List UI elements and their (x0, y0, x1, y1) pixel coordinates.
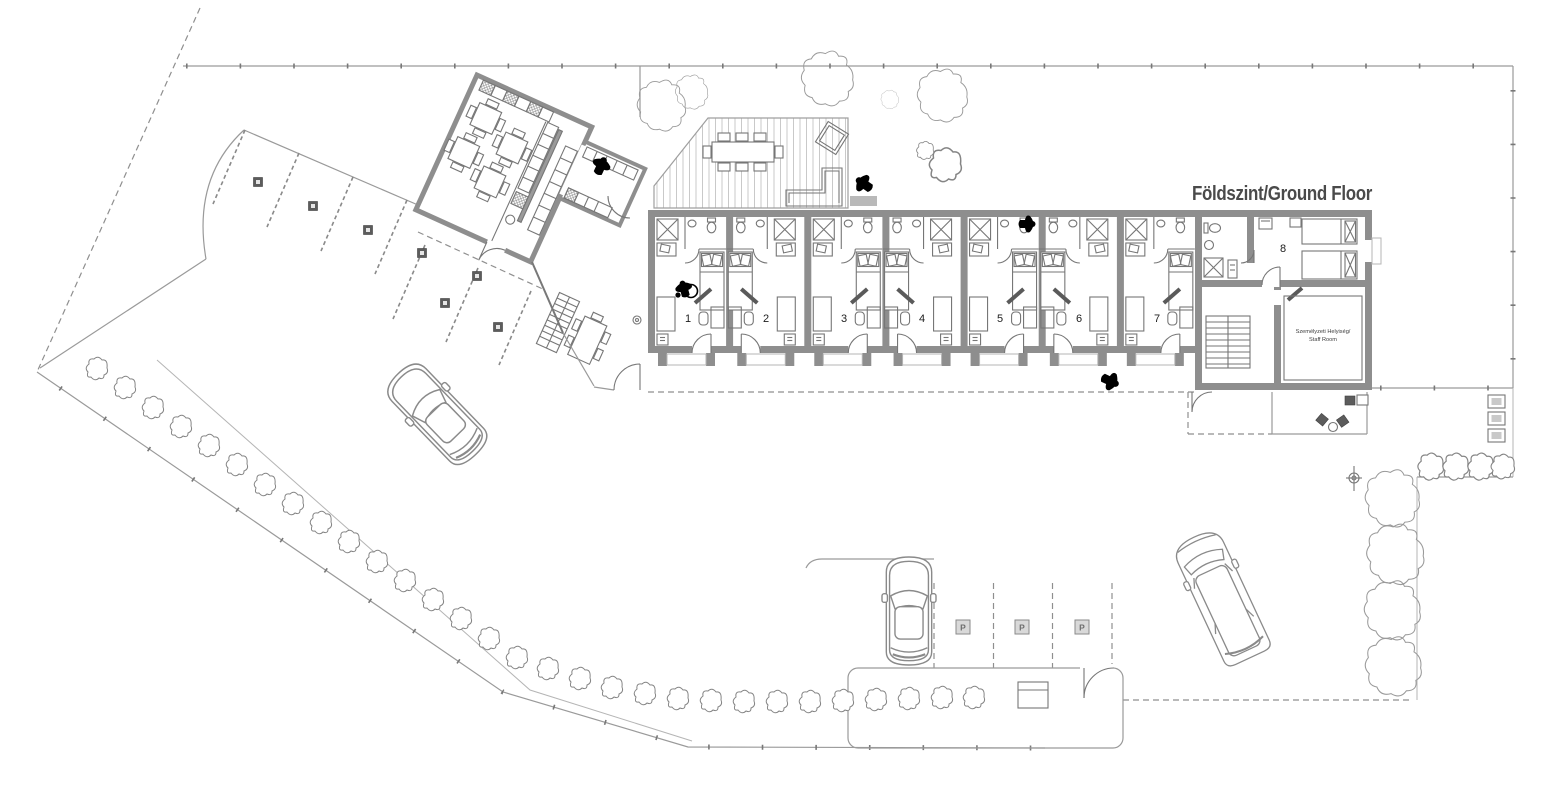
shrub-icon (931, 686, 952, 709)
car-icon (378, 354, 496, 473)
tree-icon (675, 75, 707, 109)
staff-room-label-hu: Személyzeti Helyiség/ (1296, 329, 1351, 335)
floor-title: Földszint/Ground Floor (1192, 182, 1372, 205)
tree-icon (1367, 524, 1424, 584)
parking-sign: P (956, 620, 970, 634)
shrub-icon (366, 550, 387, 573)
terrace-deck (654, 118, 877, 208)
shrub-icon (733, 690, 754, 713)
room-4-interior (883, 217, 952, 366)
svg-text:P: P (1019, 623, 1025, 633)
room-8-balcony (1365, 238, 1381, 264)
stairwell (1206, 316, 1250, 368)
shrub-icon (478, 627, 499, 650)
shrub-icon (569, 667, 590, 690)
tree-icon (1364, 581, 1420, 640)
shrub-icon (282, 492, 303, 515)
tree-icon (881, 90, 899, 109)
shrub-icon (865, 688, 886, 711)
shrub-icon (799, 690, 820, 713)
room-1-interior (657, 217, 726, 366)
room-2-interior (726, 217, 795, 366)
floor-plan-canvas: 1 2 3 4 5 6 7 8 (0, 0, 1546, 787)
shrub-icon (450, 607, 471, 630)
shrub-icon (667, 687, 688, 710)
vehicles (378, 354, 1276, 670)
room-5-number: 5 (997, 313, 1003, 325)
shrub-icon (422, 588, 443, 611)
entry-door (614, 364, 640, 390)
room-2-number: 2 (763, 313, 769, 325)
shrub-icon (929, 148, 961, 182)
wheelchair-person-icon (674, 279, 698, 300)
guest-room-block: 1 2 3 4 5 6 7 8 (648, 210, 1381, 392)
room-3-number: 3 (841, 313, 847, 325)
shrub-icon (254, 473, 275, 496)
tree-icon (917, 69, 967, 122)
shrub-icon (766, 690, 787, 713)
room-3-interior (813, 217, 882, 366)
yard-gate (1084, 668, 1114, 698)
shrub-icon (700, 689, 721, 712)
svg-text:P: P (960, 623, 966, 633)
shrub-icon (198, 434, 219, 457)
tree-icon (1365, 470, 1419, 527)
shrub-icon (86, 357, 107, 380)
shrub-icon (898, 687, 919, 710)
shrub-icon (1468, 453, 1494, 480)
tree-icon (1365, 637, 1421, 696)
shrub-icon (114, 376, 135, 399)
shrub-icon (1491, 454, 1514, 479)
person-icon (851, 171, 877, 197)
bin-store (1018, 682, 1048, 708)
shrub-icon (537, 657, 558, 680)
parking-sign: P (1075, 620, 1089, 634)
room-7-number: 7 (1154, 313, 1160, 325)
shrub-icon (170, 415, 191, 438)
room-5-interior (970, 217, 1039, 366)
tree-icon (637, 80, 685, 131)
shrub-icon (1418, 453, 1444, 480)
person-icon (1098, 369, 1123, 394)
shrub-icon (917, 141, 934, 159)
shrub-icon (310, 511, 331, 534)
floor-plan-page: 1 2 3 4 5 6 7 8 (0, 0, 1546, 787)
room-8-bathroom (1204, 223, 1254, 278)
room-8-interior (1259, 218, 1357, 300)
van-icon (1167, 525, 1276, 670)
patio-furniture (1316, 395, 1368, 432)
car-icon (882, 557, 936, 665)
shrub-icon (394, 569, 415, 592)
shrub-icon (634, 682, 655, 705)
shrub-icon (1443, 453, 1469, 480)
room-6-number: 6 (1076, 313, 1082, 325)
room-8-number: 8 (1280, 243, 1286, 255)
room-1-number: 1 (685, 313, 691, 325)
shrub-icon (963, 686, 984, 709)
reception-table (561, 307, 616, 367)
shrub-icon (226, 453, 247, 476)
parking-sign: P (1015, 620, 1029, 634)
property-line (37, 8, 200, 372)
staff-room-label-en: Staff Room (1309, 337, 1337, 343)
room-7-interior (1126, 217, 1195, 366)
pavement (848, 668, 1123, 748)
shrub-icon (142, 396, 163, 419)
shrub-icon (832, 689, 853, 712)
tree-icon (801, 51, 853, 106)
room-4-number: 4 (919, 313, 925, 325)
pole-icon (1346, 466, 1362, 491)
door-mat (850, 196, 877, 206)
lower-parking-area: P P P (806, 559, 1123, 748)
planters (1488, 395, 1505, 442)
room-6-interior (1039, 217, 1108, 366)
staff-patio (1188, 392, 1368, 434)
shrub-icon (506, 646, 527, 669)
shrub-icon (601, 676, 622, 699)
staff-room: Személyzeti Helyiség/ Staff Room (1274, 290, 1362, 380)
svg-text:P: P (1079, 623, 1085, 633)
shrub-icon (338, 530, 359, 553)
